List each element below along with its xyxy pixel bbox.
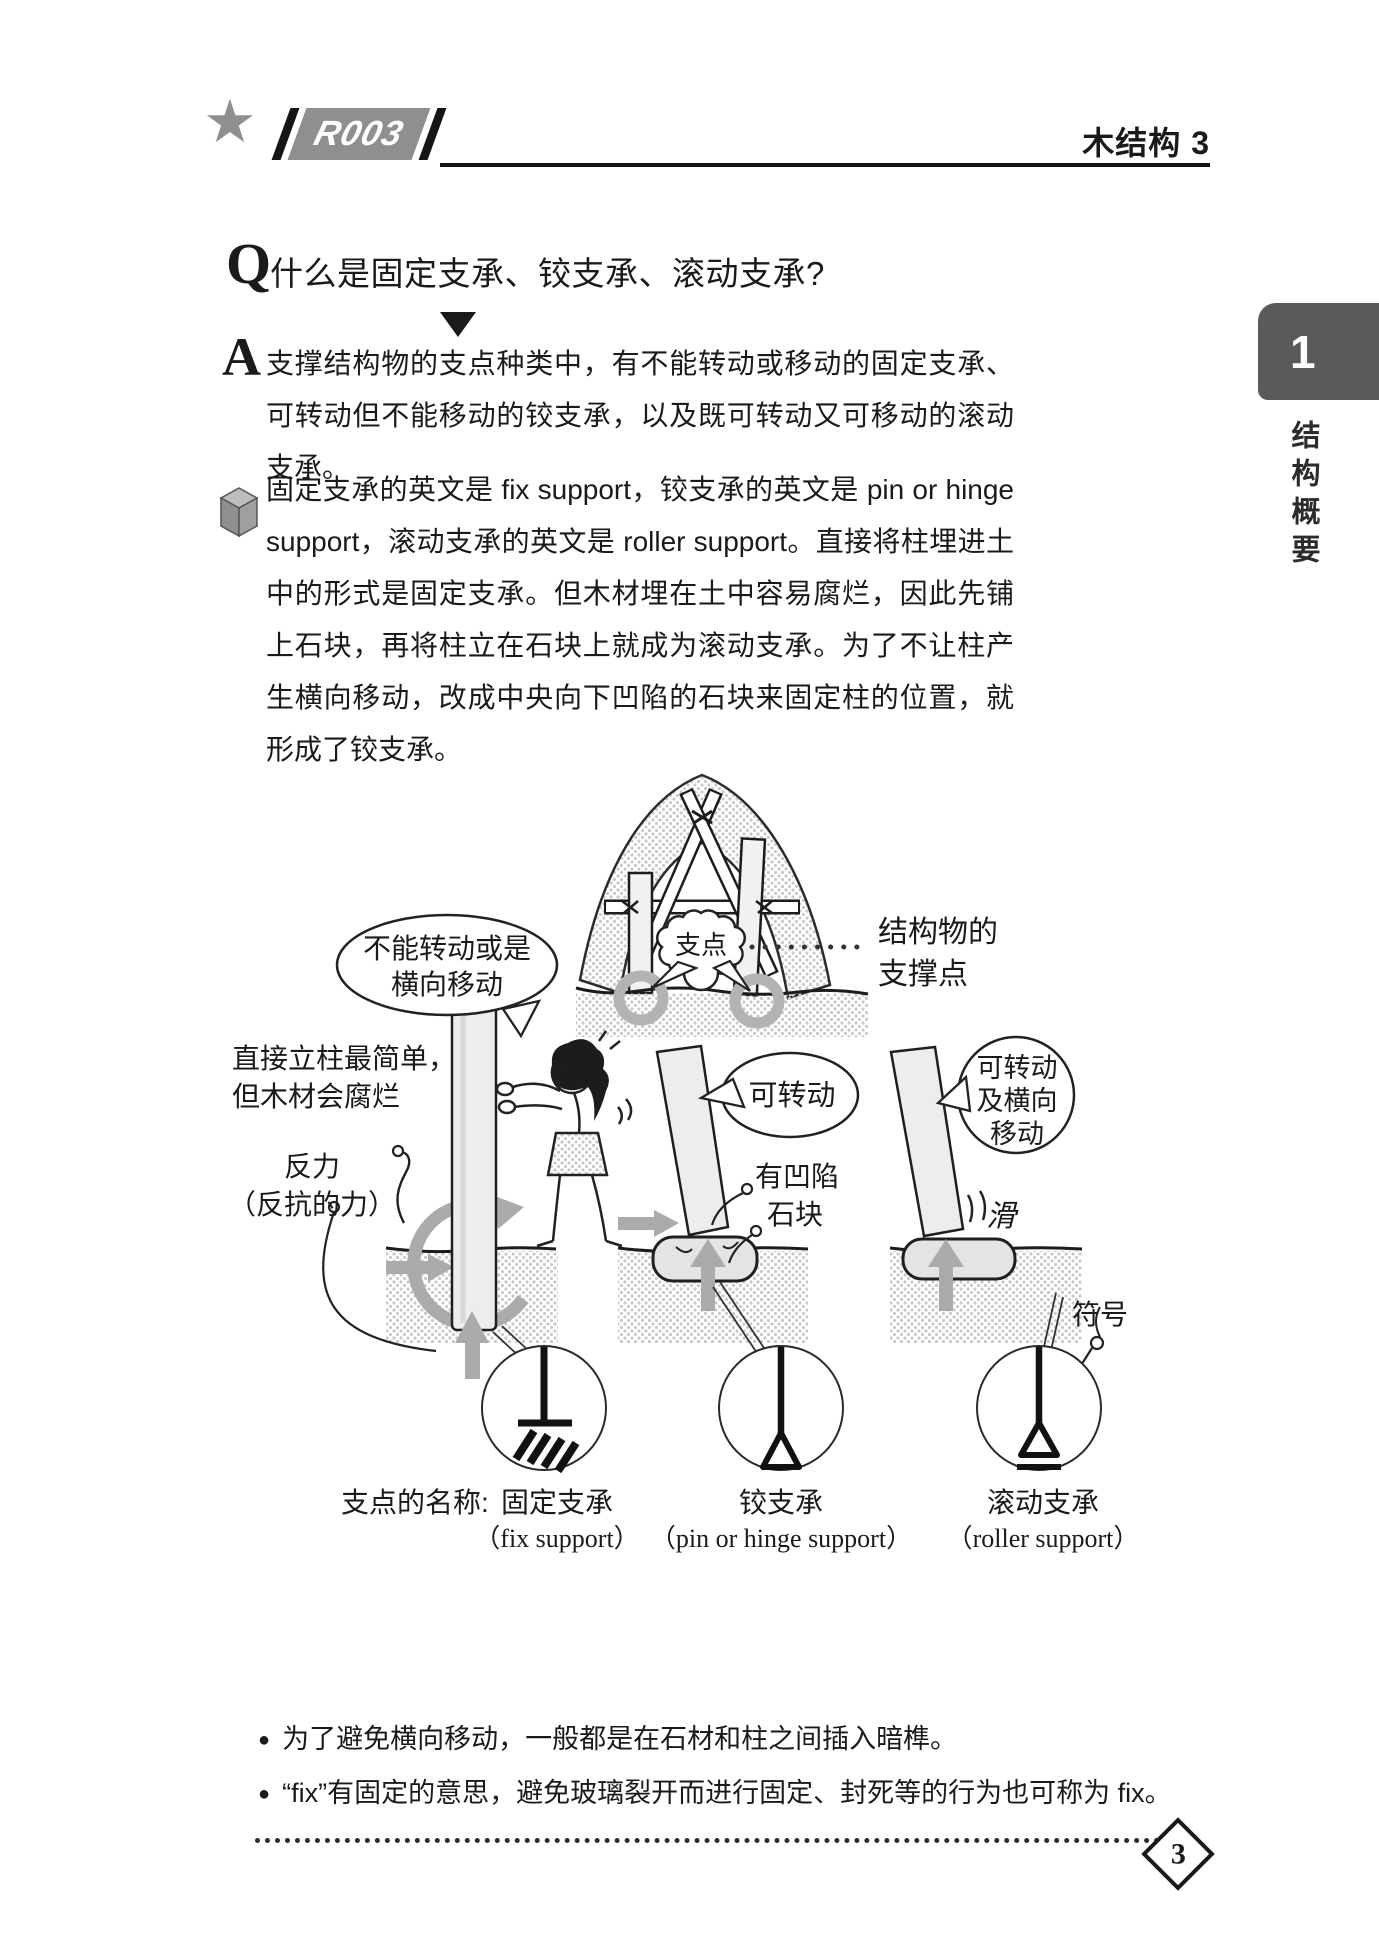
support-types-illustration: 支点 (0, 755, 1379, 1575)
page-number: 3 (1171, 1837, 1186, 1871)
support-en-roller: （roller support） (923, 1520, 1163, 1558)
answer-marker: A (222, 326, 261, 388)
tilted-pole (657, 1046, 728, 1235)
rotatable-bubble-text: 可转动 (748, 1079, 835, 1112)
book-page: ★ R003 木结构 3 1 结构概要 Q 什么是固定支承、铰支承、滚动支承? … (0, 0, 1379, 1946)
support-name-roller: 滚动支承 (923, 1484, 1163, 1522)
section-badge-label: R003 (310, 114, 408, 154)
rotate-move-bubble-text: 及横向 (977, 1086, 1058, 1116)
slide-label: 滑 (986, 1198, 1016, 1236)
down-triangle-icon (440, 312, 476, 337)
chapter-side-label: 结构概要 (1282, 420, 1324, 572)
star-icon: ★ (203, 92, 257, 152)
body-paragraph: 固定支承的英文是 fix support，铰支承的英文是 pin or hing… (266, 464, 1014, 776)
push-arrow (618, 1210, 679, 1237)
buried-pole (452, 1000, 496, 1330)
flat-stone (903, 1239, 1015, 1279)
pillar-note-label: 直接立柱最简单， 但木材会腐烂 (232, 1040, 456, 1116)
rotate-move-bubble-text: 移动 (990, 1119, 1044, 1149)
rotate-move-bubble-text: 可转动 (977, 1053, 1058, 1083)
fulcrum-bubble-text: 支点 (675, 930, 727, 960)
chapter-number: 1 (1290, 325, 1316, 379)
support-point-label: 结构物的 支撑点 (878, 912, 998, 996)
chapter-tab: 1 (1258, 303, 1379, 400)
caveman-figure (497, 1031, 631, 1246)
cube-icon (219, 486, 259, 538)
support-symbols (482, 1346, 1101, 1471)
section-badge: R003 (288, 108, 431, 160)
symbol-label: 符号 (1072, 1296, 1128, 1334)
question-marker: Q (226, 230, 271, 297)
support-en-pin: （pin or hinge support） (641, 1520, 921, 1558)
reaction-label: 反力 （反抗的力） (224, 1148, 400, 1224)
support-name-pin: 铰支承 (661, 1484, 901, 1522)
support-name-fixed: 固定支承 (437, 1484, 677, 1522)
hollow-stone-label: 有凹陷 石块 (755, 1158, 839, 1234)
chapter-title: 木结构 3 (1000, 118, 1210, 164)
slide-marks (968, 1191, 985, 1222)
footnote-item: “fix”有固定的意思，避免玻璃裂开而进行固定、封死等的行为也可称为 fix。 (258, 1776, 1168, 1811)
no-rotate-bubble: 不能转动或是 横向移动 (337, 915, 557, 1036)
no-rotate-bubble-text: 不能转动或是 (363, 933, 531, 964)
no-rotate-bubble-text: 横向移动 (391, 969, 503, 1000)
house-drawing: 支点 (576, 775, 868, 1037)
tilted-pole (891, 1047, 963, 1236)
question-text: 什么是固定支承、铰支承、滚动支承? (270, 247, 825, 295)
footnote-item: 为了避免横向移动，一般都是在石材和柱之间插入暗榫。 (258, 1722, 1168, 1757)
dotted-rule (255, 1824, 1160, 1843)
